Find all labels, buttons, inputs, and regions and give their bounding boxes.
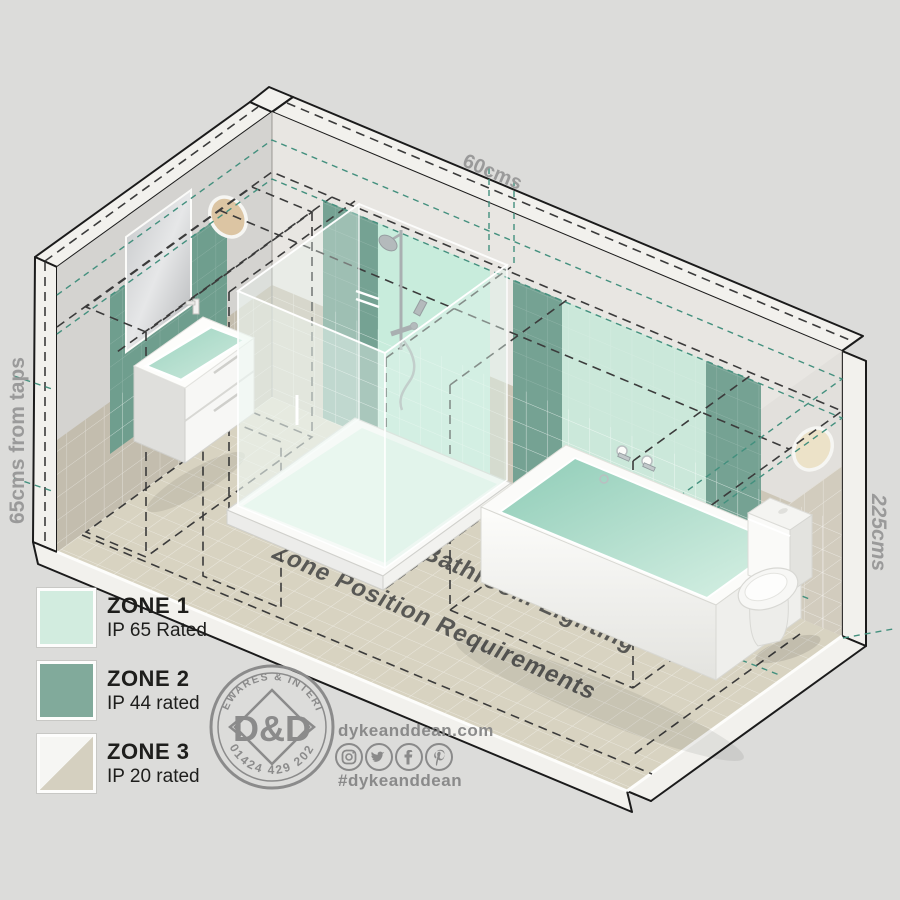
social-row: dykeanddean.com #dykeanddean [336, 721, 494, 790]
zone-legend: ZONE 1 IP 65 Rated ZONE 2 IP 44 rated ZO… [37, 588, 207, 807]
zone2-swatch [37, 661, 96, 720]
zone1-swatch [37, 588, 96, 647]
dimension-right-225cms: 225cms [866, 494, 890, 571]
facebook-icon [396, 744, 422, 770]
zone3-rating: IP 20 rated [107, 765, 200, 789]
hashtag-text: #dykeanddean [338, 771, 462, 790]
zone2-rating: IP 44 rated [107, 692, 200, 716]
legend-item-zone2: ZONE 2 IP 44 rated [37, 661, 207, 720]
pinterest-icon [426, 744, 452, 770]
zone3-label: ZONE 3 [107, 738, 200, 766]
dimension-left-65cms: 65cms from taps [6, 357, 30, 524]
zone1-label: ZONE 1 [107, 592, 207, 620]
zone2-label: ZONE 2 [107, 665, 200, 693]
zone3-swatch [37, 734, 96, 793]
poster: IP Rated Bathroom Lighting Zone Position… [0, 0, 900, 900]
instagram-icon [336, 744, 362, 770]
twitter-icon [366, 744, 392, 770]
stamp-monogram: D&D [233, 708, 311, 749]
legend-item-zone3: ZONE 3 IP 20 rated [37, 734, 207, 793]
right-wall-back-band [842, 351, 866, 646]
legend-item-zone1: ZONE 1 IP 65 Rated [37, 588, 207, 647]
website-text: dykeanddean.com [338, 721, 494, 740]
zone1-rating: IP 65 Rated [107, 619, 207, 643]
